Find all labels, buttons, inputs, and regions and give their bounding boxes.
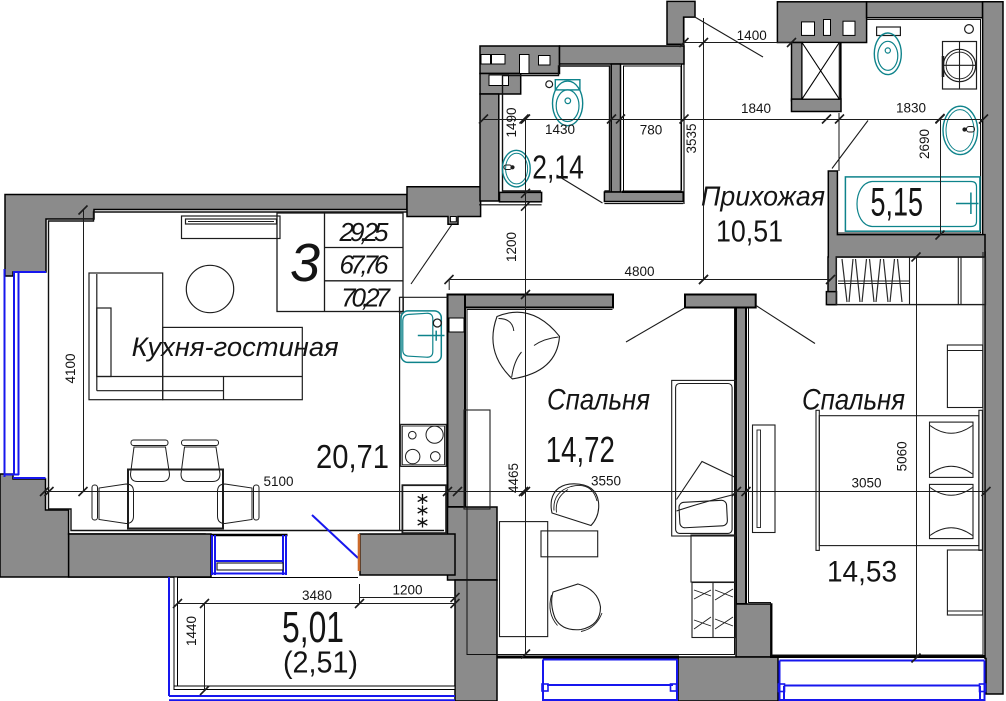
svg-text:1830: 1830 — [896, 101, 926, 116]
svg-text:4800: 4800 — [624, 264, 654, 279]
svg-text:1200: 1200 — [392, 583, 422, 598]
svg-text:5,15: 5,15 — [871, 181, 924, 225]
svg-text:14,53: 14,53 — [827, 556, 897, 589]
svg-text:Прихожая: Прихожая — [701, 181, 825, 212]
svg-text:780: 780 — [640, 123, 663, 138]
svg-text:(2,51): (2,51) — [283, 645, 358, 680]
svg-text:2,14: 2,14 — [532, 149, 584, 186]
svg-text:67,76: 67,76 — [340, 250, 390, 280]
svg-text:70,27: 70,27 — [341, 283, 392, 313]
svg-text:1200: 1200 — [504, 232, 519, 262]
svg-text:Спальня: Спальня — [802, 384, 905, 417]
svg-text:3535: 3535 — [684, 123, 699, 153]
svg-text:5060: 5060 — [895, 441, 910, 471]
svg-text:14,72: 14,72 — [546, 429, 615, 470]
svg-text:3050: 3050 — [851, 476, 881, 491]
svg-text:2690: 2690 — [917, 129, 932, 159]
svg-text:1400: 1400 — [737, 28, 767, 43]
svg-text:29,25: 29,25 — [339, 217, 390, 247]
svg-text:10,51: 10,51 — [716, 214, 783, 249]
svg-text:1840: 1840 — [741, 101, 771, 116]
svg-text:5100: 5100 — [263, 474, 293, 489]
svg-text:1490: 1490 — [504, 107, 519, 137]
svg-text:3480: 3480 — [302, 588, 332, 603]
svg-text:Кухня-гостиная: Кухня-гостиная — [132, 332, 339, 362]
svg-text:3: 3 — [290, 233, 320, 293]
svg-text:1430: 1430 — [545, 122, 575, 137]
svg-text:4100: 4100 — [63, 353, 78, 383]
svg-text:20,71: 20,71 — [316, 438, 389, 475]
svg-text:Спальня: Спальня — [547, 384, 650, 417]
svg-text:4465: 4465 — [506, 463, 521, 493]
svg-text:1440: 1440 — [184, 616, 199, 646]
svg-text:3550: 3550 — [591, 474, 621, 489]
